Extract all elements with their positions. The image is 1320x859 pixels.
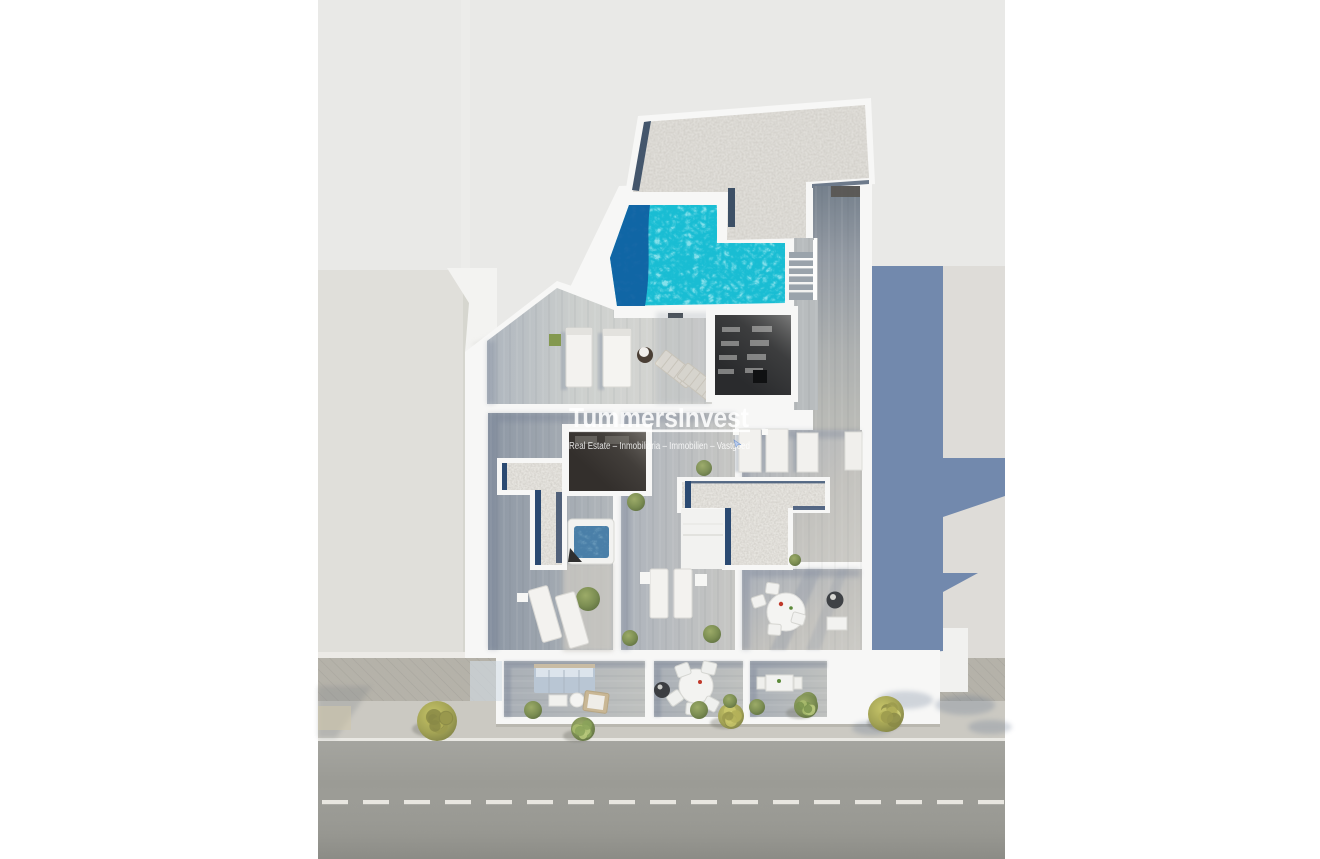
svg-text:Real Estate – Inmobiliaria – I: Real Estate – Inmobiliaria – Immobilien … (569, 441, 750, 452)
svg-text:TummersInvest: TummersInvest (569, 402, 749, 433)
